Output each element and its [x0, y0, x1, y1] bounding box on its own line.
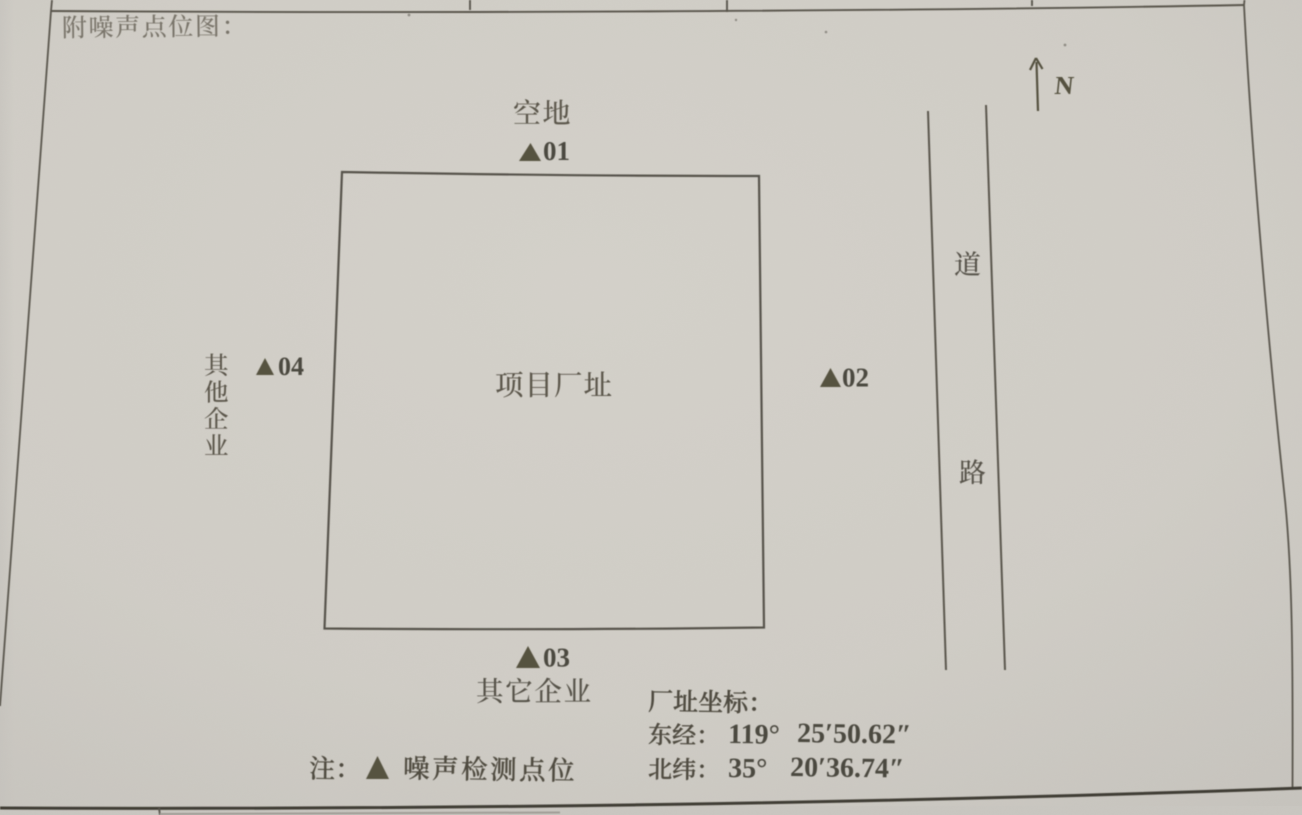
svg-text:02: 02	[842, 363, 869, 393]
svg-text:25′50.62″: 25′50.62″	[797, 718, 912, 751]
svg-text:03: 03	[543, 643, 570, 673]
svg-text:04: 04	[278, 352, 304, 381]
svg-text:01: 01	[543, 136, 570, 166]
svg-text:20′36.74″: 20′36.74″	[790, 752, 905, 785]
svg-text:N: N	[1053, 71, 1075, 100]
svg-text:119°: 119°	[728, 719, 780, 751]
svg-text:35°: 35°	[728, 753, 768, 785]
